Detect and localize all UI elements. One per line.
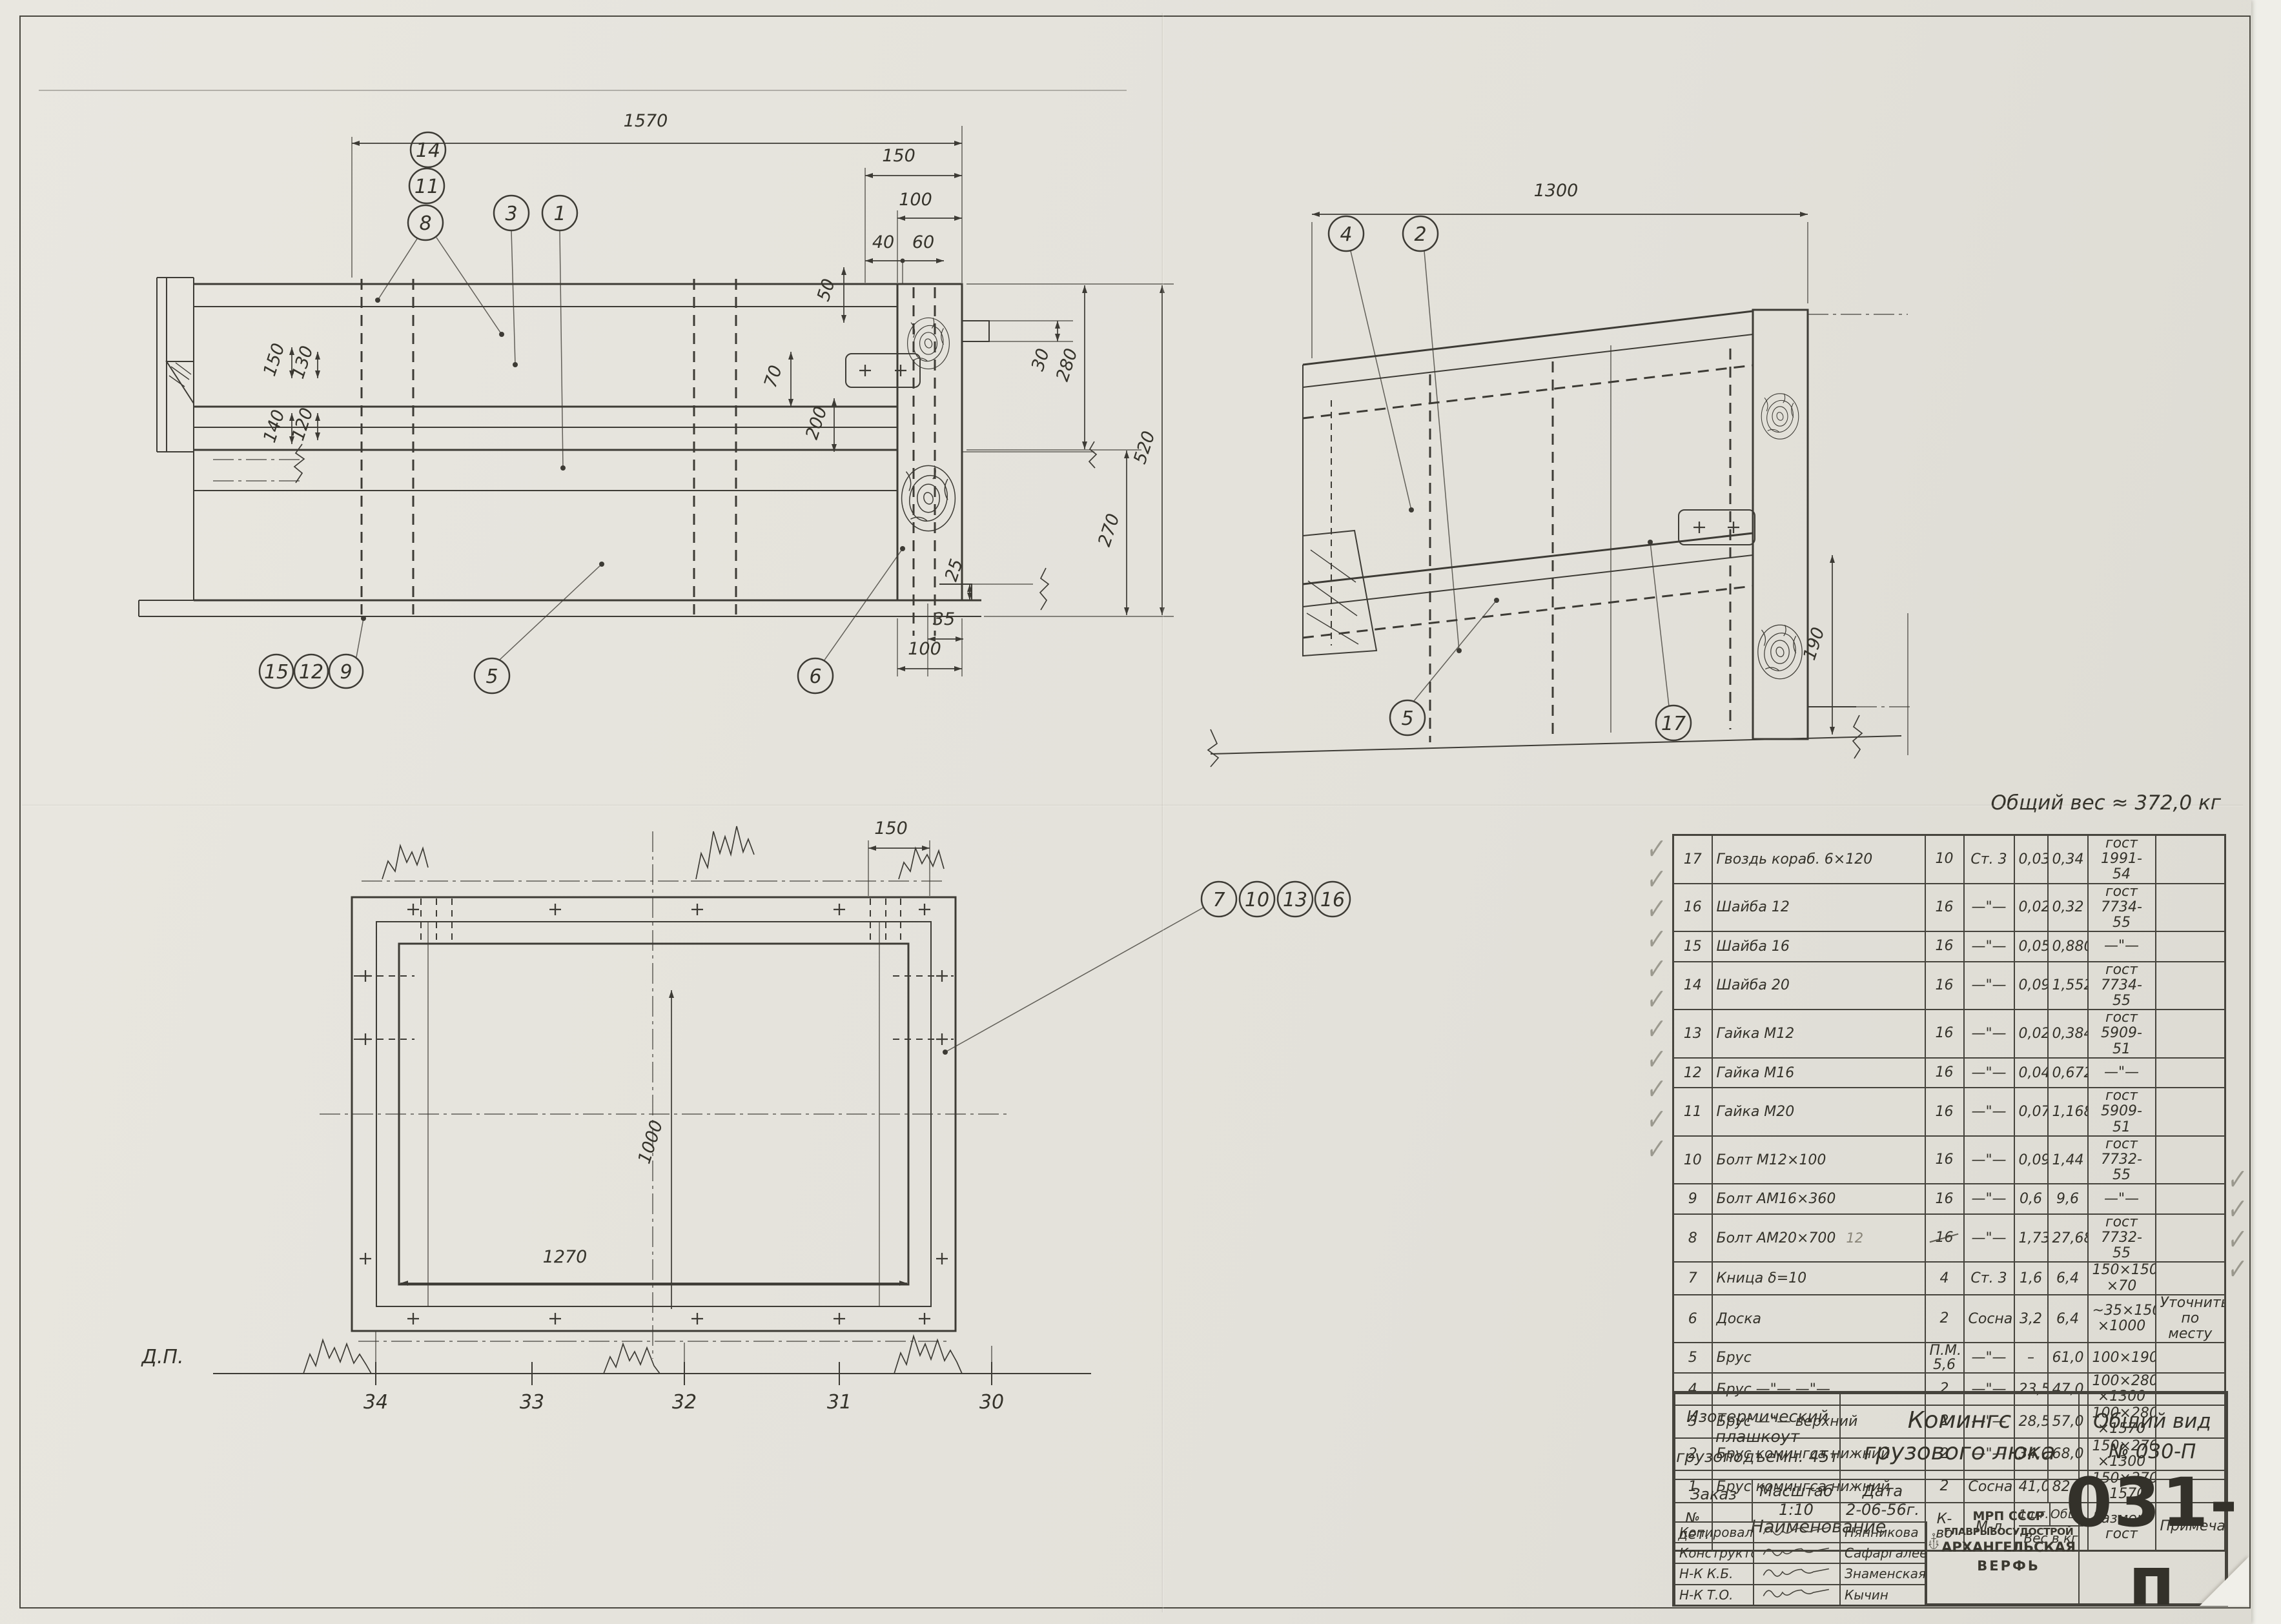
pencil-edit: 12	[1846, 1230, 1863, 1246]
table-row: 8 Болт АМ20×70012 16 —"— 1,73 27,68 гост…	[1673, 1214, 2225, 1263]
bom-cell-weight-total: 0,672	[2048, 1058, 2088, 1088]
stamp-org-2: ГЛАВРЫБОСУДОСТРОЙ	[1941, 1525, 2076, 1539]
bom-cell-qty: 10	[1925, 835, 1964, 884]
title-order: Заказ	[1674, 1479, 1753, 1523]
callout-11: 11	[414, 176, 439, 198]
view-side: 1300 4 2	[1208, 181, 1911, 767]
bom-cell-qty: 16	[1925, 962, 1964, 1010]
bom-cell-no: 17	[1673, 835, 1712, 884]
bom-cell-note	[2156, 1136, 2225, 1184]
table-row: 9 Болт АМ16×360 16 —"— 0,6 9,6 —"—	[1673, 1184, 2225, 1214]
table-row: 7 Кница δ=10 4 Ст. 3 1,6 6,4 150×150 ×70	[1673, 1262, 2225, 1294]
bom-cell-weight-total: 1,44	[2048, 1136, 2088, 1184]
table-row: 11 Гайка М20 16 —"— 0,073 1,168 гост 590…	[1673, 1088, 2225, 1136]
dim-200: 200	[802, 404, 831, 442]
bom-cell-mat: —"—	[1964, 884, 2014, 932]
bom-cell-size: гост 7734-55	[2088, 962, 2156, 1010]
bom-cell-size: 100×190	[2088, 1343, 2156, 1373]
table-row: 15 Шайба 16 16 —"— 0,055 0,880 —"—	[1673, 931, 2225, 962]
bom-cell-weight-total: 6,4	[2048, 1262, 2088, 1294]
callout-1: 1	[553, 203, 566, 225]
bom-cell-qty: 16	[1925, 1058, 1964, 1088]
bom-cell-weight-unit: 1,73	[2014, 1214, 2048, 1263]
bom-cell-weight-unit: 0,034	[2014, 835, 2048, 884]
callout-12: 12	[299, 661, 323, 684]
bom-cell-no: 16	[1673, 884, 1712, 932]
bom-cell-size: гост 7732-55	[2088, 1214, 2156, 1263]
baseline-label: Д.П.	[140, 1346, 183, 1368]
bom-cell-size: —"—	[2088, 1058, 2156, 1088]
bom-cell-weight-unit: 0,097	[2014, 962, 2048, 1010]
bom-cell-qty: 16	[1925, 1214, 1964, 1263]
bom-cell-mat: —"—	[1964, 1214, 2014, 1263]
bom-cell-note	[2156, 1262, 2225, 1294]
signature-squiggle-icon	[1759, 1585, 1835, 1601]
dim-520: 520	[1130, 429, 1159, 467]
bom-cell-mat: —"—	[1964, 1343, 2014, 1373]
table-row: 13 Гайка М12 16 —"— 0,024 0,384 гост 590…	[1673, 1010, 2225, 1058]
dim-280: 280	[1052, 346, 1081, 384]
callout-17: 17	[1661, 713, 1686, 735]
dim-190: 190	[1799, 625, 1828, 663]
title-block: Изотермический плашкоут грузоподъемн. 45…	[1672, 1391, 2228, 1607]
bom-cell-note	[2156, 884, 2225, 932]
bom-cell-mat: —"—	[1964, 1136, 2014, 1184]
station-30: 30	[979, 1391, 1004, 1414]
signature-table: Копировала Нянникова Конструктор Сафарга…	[1674, 1521, 1927, 1606]
callout-14: 14	[416, 139, 440, 162]
svg-text:С: С	[1933, 1539, 1935, 1543]
bom-cell-weight-total: 1,168	[2048, 1088, 2088, 1136]
total-weight-note: Общий вес ≈ 372,0 кг	[1905, 791, 2221, 815]
bom-cell-weight-unit: 0,073	[2014, 1088, 2048, 1136]
bom-cell-size: гост 7734-55	[2088, 884, 2156, 932]
bom-cell-name: Болт АМ16×360	[1712, 1184, 1925, 1214]
bom-cell-no: 10	[1673, 1136, 1712, 1184]
bom-cell-size: гост 1991-54	[2088, 835, 2156, 884]
stamp-org-1: МРП СССР	[1941, 1508, 2076, 1525]
bom-cell-note	[2156, 1010, 2225, 1058]
callout-4: 4	[1340, 223, 1352, 246]
signature-name: Знаменская	[1840, 1563, 1927, 1584]
bom-cell-qty: 16	[1925, 1010, 1964, 1058]
bom-cell-size: гост 7732-55	[2088, 1136, 2156, 1184]
bom-cell-weight-unit: 0,042	[2014, 1058, 2048, 1088]
bom-cell-weight-unit: 0,6	[2014, 1184, 2048, 1214]
bom-cell-weight-total: 0,880	[2048, 931, 2088, 962]
dim-25: 25	[941, 556, 967, 584]
title-drawing-name: Комингс грузового люка	[1839, 1393, 2080, 1480]
bom-cell-size: —"—	[2088, 931, 2156, 962]
bom-cell-weight-total: 0,32	[2048, 884, 2088, 932]
dim-60: 60	[912, 232, 934, 252]
bom-cell-mat: —"—	[1964, 1088, 2014, 1136]
station-31: 31	[827, 1391, 852, 1414]
bom-cell-size: —"—	[2088, 1184, 2156, 1214]
corner-fold	[2200, 1557, 2249, 1606]
callout-10: 10	[1245, 889, 1269, 911]
signature-name: Нянникова	[1840, 1522, 1927, 1543]
bom-cell-weight-unit: 0,055	[2014, 931, 2048, 962]
table-row: 14 Шайба 20 16 —"— 0,097 1,552 гост 7734…	[1673, 962, 2225, 1010]
bom-cell-mat: —"—	[1964, 931, 2014, 962]
bom-cell-name: Шайба 20	[1712, 962, 1925, 1010]
bom-cell-weight-total: 61,0	[2048, 1343, 2088, 1373]
signature-role: Конструктор	[1675, 1543, 1754, 1563]
bom-cell-size: гост 5909-51	[2088, 1010, 2156, 1058]
title-object: Изотермический плашкоут грузоподъемн. 45…	[1674, 1393, 1841, 1480]
bom-cell-no: 8	[1673, 1214, 1712, 1263]
dim-30: 30	[1028, 346, 1054, 373]
anchor-icon: А С В	[1928, 1494, 1939, 1590]
callout-5b: 5	[1401, 707, 1413, 730]
bom-cell-note	[2156, 962, 2225, 1010]
bom-cell-mat: —"—	[1964, 1184, 2014, 1214]
bom-cell-no: 12	[1673, 1058, 1712, 1088]
bom-cell-size: гост 5909-51	[2088, 1088, 2156, 1136]
signature-squiggle-icon	[1759, 1544, 1835, 1559]
bom-cell-mat: —"—	[1964, 1058, 2014, 1088]
station-33: 33	[520, 1391, 544, 1414]
bom-cell-qty: 16	[1925, 884, 1964, 932]
signature-squiggle-icon	[1759, 1565, 1835, 1580]
bom-cell-note	[2156, 835, 2225, 884]
bom-cell-name: Гайка М16	[1712, 1058, 1925, 1088]
bom-cell-no: 14	[1673, 962, 1712, 1010]
bom-cell-weight-total: 9,6	[2048, 1184, 2088, 1214]
dim-130-left: 130	[288, 343, 317, 381]
dim-1300: 1300	[1534, 181, 1579, 201]
signature-name: Кычин	[1840, 1585, 1927, 1605]
station-34: 34	[363, 1391, 388, 1414]
bom-cell-name: Доска	[1712, 1295, 1925, 1343]
bom-cell-note	[2156, 1088, 2225, 1136]
bom-cell-no: 7	[1673, 1262, 1712, 1294]
bom-cell-name: Брус	[1712, 1343, 1925, 1373]
view-front: 1570 150 100 40 60 50 70 200 280	[139, 111, 1174, 693]
signature-autograph	[1754, 1563, 1840, 1584]
bom-cell-mat: —"—	[1964, 962, 2014, 1010]
bom-cell-note	[2156, 1058, 2225, 1088]
dim-100-bottom: 100	[908, 639, 941, 659]
bom-cell-weight-total: 0,384	[2048, 1010, 2088, 1058]
bom-cell-note	[2156, 1184, 2225, 1214]
bom-cell-note	[2156, 1343, 2225, 1373]
stamp-org-3: АРХАНГЕЛЬСКАЯ	[1941, 1538, 2076, 1556]
stamp-org-4: ВЕРФЬ	[1941, 1557, 2076, 1575]
bom-cell-no: 9	[1673, 1184, 1712, 1214]
bom-cell-mat: —"—	[1964, 1010, 2014, 1058]
dim-1000: 1000	[635, 1118, 668, 1166]
bom-cell-weight-total: 6,4	[2048, 1295, 2088, 1343]
title-scale: Масштаб 1:10	[1752, 1479, 1841, 1523]
bom-cell-no: 13	[1673, 1010, 1712, 1058]
bom-cell-name: Шайба 16	[1712, 931, 1925, 962]
bom-cell-weight-unit: 1,6	[2014, 1262, 2048, 1294]
bom-cell-name: Кница δ=10	[1712, 1262, 1925, 1294]
signature-rows: Копировала Нянникова Конструктор Сафарга…	[1675, 1522, 1927, 1605]
view-plan: 150 1000 1270 7 10 13 16 Д.П.	[140, 818, 1350, 1414]
dim-70: 70	[761, 363, 786, 390]
callout-3: 3	[505, 203, 517, 225]
stamp-text: МРП СССР ГЛАВРЫБОСУДОСТРОЙ АРХАНГЕЛЬСКАЯ…	[1941, 1508, 2076, 1575]
dim-40: 40	[872, 232, 894, 252]
bom-cell-qty: 2	[1925, 1295, 1964, 1343]
bom-cell-name: Гвоздь кораб. 6×120	[1712, 835, 1925, 884]
dim-1570: 1570	[624, 111, 668, 131]
signature-autograph	[1754, 1522, 1840, 1543]
callout-8: 8	[419, 212, 431, 235]
bom-cell-note	[2156, 931, 2225, 962]
callout-16: 16	[1320, 889, 1345, 911]
dim-35: 35	[933, 609, 955, 629]
bom-cell-no: 5	[1673, 1343, 1712, 1373]
table-row: 6 Доска 2 Сосна 3,2 6,4 ~35×150 ×1000 Ут…	[1673, 1295, 2225, 1343]
table-row: 12 Гайка М16 16 —"— 0,042 0,672 —"—	[1673, 1058, 2225, 1088]
bom-cell-no: 15	[1673, 931, 1712, 962]
callout-7: 7	[1212, 889, 1225, 911]
signature-row: Конструктор Сафаргалеева	[1675, 1543, 1927, 1563]
dim-150-plan: 150	[874, 818, 908, 838]
bom-cell-mat: Ст. 3	[1964, 835, 2014, 884]
dim-150-top: 150	[882, 146, 915, 166]
signature-role: Н-К К.Б.	[1675, 1563, 1754, 1584]
bom-cell-weight-unit: 0,02	[2014, 884, 2048, 932]
dim-50: 50	[813, 276, 839, 303]
bom-cell-name: Гайка М12	[1712, 1010, 1925, 1058]
bom-cell-weight-total: 1,552	[2048, 962, 2088, 1010]
callout-15: 15	[264, 661, 289, 684]
fold-crease-horizontal	[22, 804, 2243, 807]
callout-13: 13	[1283, 889, 1307, 911]
bom-cell-weight-unit: –	[2014, 1343, 2048, 1373]
signature-autograph	[1754, 1543, 1840, 1563]
bom-cell-no: 6	[1673, 1295, 1712, 1343]
bom-cell-qty: 16	[1925, 931, 1964, 962]
bom-cell-qty: П.М. 5,6	[1925, 1343, 1964, 1373]
bom-cell-name: Гайка М20	[1712, 1088, 1925, 1136]
callout-5: 5	[486, 665, 498, 688]
station-32: 32	[672, 1391, 697, 1414]
signature-name: Сафаргалеева	[1840, 1543, 1927, 1563]
bom-cell-name: Болт М12×100	[1712, 1136, 1925, 1184]
bom-cell-mat: Сосна	[1964, 1295, 2014, 1343]
signature-row: Н-К Т.О. Кычин	[1675, 1585, 1927, 1605]
table-row: 16 Шайба 12 16 —"— 0,02 0,32 гост 7734-5…	[1673, 884, 2225, 932]
dim-120-left: 120	[288, 405, 317, 443]
title-date: Дата 2-06-56г.	[1839, 1479, 1926, 1523]
svg-text:В: В	[1936, 1540, 1939, 1544]
bom-cell-qty: 16	[1925, 1184, 1964, 1214]
bom-cell-name: Шайба 12	[1712, 884, 1925, 932]
bom-cell-name: Болт АМ20×70012	[1712, 1214, 1925, 1263]
bom-cell-qty: 16	[1925, 1088, 1964, 1136]
dim-140-left: 140	[260, 407, 289, 445]
callout-9: 9	[340, 661, 352, 684]
table-row: 5 Брус П.М. 5,6 —"— – 61,0 100×190	[1673, 1343, 2225, 1373]
bom-cell-weight-unit: 3,2	[2014, 1295, 2048, 1343]
dim-1270: 1270	[543, 1247, 588, 1267]
callout-2: 2	[1414, 223, 1426, 246]
shipyard-stamp: А С В МРП СССР ГЛАВРЫБОСУДОСТРОЙ АРХАНГЕ…	[1925, 1479, 2080, 1605]
callout-6: 6	[809, 665, 821, 688]
bom-cell-note: Уточнить по месту	[2156, 1295, 2225, 1343]
dim-150-left: 150	[260, 341, 289, 379]
bom-cell-size: ~35×150 ×1000	[2088, 1295, 2156, 1343]
bom-cell-mat: Ст. 3	[1964, 1262, 2014, 1294]
fold-crease-vertical	[1161, 13, 1164, 1612]
table-row: 10 Болт М12×100 16 —"— 0,09 1,44 гост 77…	[1673, 1136, 2225, 1184]
bom-cell-weight-total: 27,68	[2048, 1214, 2088, 1263]
bom-cell-weight-total: 0,34	[2048, 835, 2088, 884]
signature-row: Н-К К.Б. Знаменская	[1675, 1563, 1927, 1584]
bom-cell-note	[2156, 1214, 2225, 1263]
bom-cell-weight-unit: 0,09	[2014, 1136, 2048, 1184]
svg-text:А: А	[1928, 1540, 1931, 1544]
bom-cell-no: 11	[1673, 1088, 1712, 1136]
signature-autograph	[1754, 1585, 1840, 1605]
signature-role: Копировала	[1675, 1522, 1754, 1543]
bom-cell-size: 150×150 ×70	[2088, 1262, 2156, 1294]
signature-squiggle-icon	[1759, 1523, 1835, 1539]
bom-cell-weight-unit: 0,024	[2014, 1010, 2048, 1058]
drawing-sheet: 1570 150 100 40 60 50 70 200 280	[0, 0, 2251, 1624]
dim-100-top: 100	[899, 190, 932, 210]
signature-role: Н-К Т.О.	[1675, 1585, 1754, 1605]
signature-row: Копировала Нянникова	[1675, 1522, 1927, 1543]
bom-cell-qty: 4	[1925, 1262, 1964, 1294]
bom-cell-qty: 16	[1925, 1136, 1964, 1184]
dim-270: 270	[1094, 511, 1123, 549]
table-row: 17 Гвоздь кораб. 6×120 10 Ст. 3 0,034 0,…	[1673, 835, 2225, 884]
